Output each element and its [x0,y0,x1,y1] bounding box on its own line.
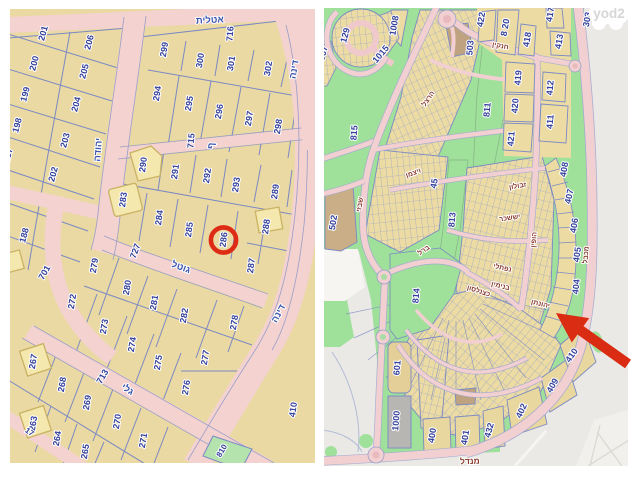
svg-text:420: 420 [509,98,520,114]
svg-text:285: 285 [183,221,195,237]
svg-text:412: 412 [544,80,555,96]
svg-text:811: 811 [481,102,492,117]
svg-text:411: 411 [544,114,555,129]
svg-text:מכבל: מכבל [581,246,590,264]
svg-text:286: 286 [218,231,230,247]
svg-text:1000: 1000 [390,410,402,431]
svg-text:715: 715 [185,133,196,149]
svg-text:הופין: הופין [530,232,538,248]
svg-text:405: 405 [571,246,583,262]
svg-text:יהודה: יהודה [92,138,105,162]
svg-text:813: 813 [446,212,457,228]
svg-text:287: 287 [245,257,257,273]
svg-text:293: 293 [230,176,242,192]
svg-text:45: 45 [428,178,440,190]
svg-text:601: 601 [391,360,402,376]
svg-text:283: 283 [117,191,129,207]
svg-text:אטלית: אטלית [196,14,225,26]
svg-text:yod2: yod2 [593,6,625,21]
svg-text:290: 290 [137,156,149,172]
svg-text:ף: ף [206,142,218,149]
svg-text:814: 814 [410,288,421,304]
svg-text:410: 410 [287,401,299,417]
svg-text:404: 404 [570,279,582,295]
svg-text:815: 815 [348,125,359,141]
svg-text:מנדל: מנדל [460,456,480,467]
svg-text:291: 291 [169,163,181,179]
svg-text:288: 288 [260,218,272,234]
svg-text:292: 292 [201,167,213,183]
svg-text:503: 503 [464,40,475,56]
svg-text:289: 289 [269,183,281,199]
svg-text:419: 419 [512,70,523,86]
svg-text:284: 284 [153,209,165,225]
svg-text:716: 716 [224,26,235,42]
svg-text:421: 421 [505,131,516,147]
